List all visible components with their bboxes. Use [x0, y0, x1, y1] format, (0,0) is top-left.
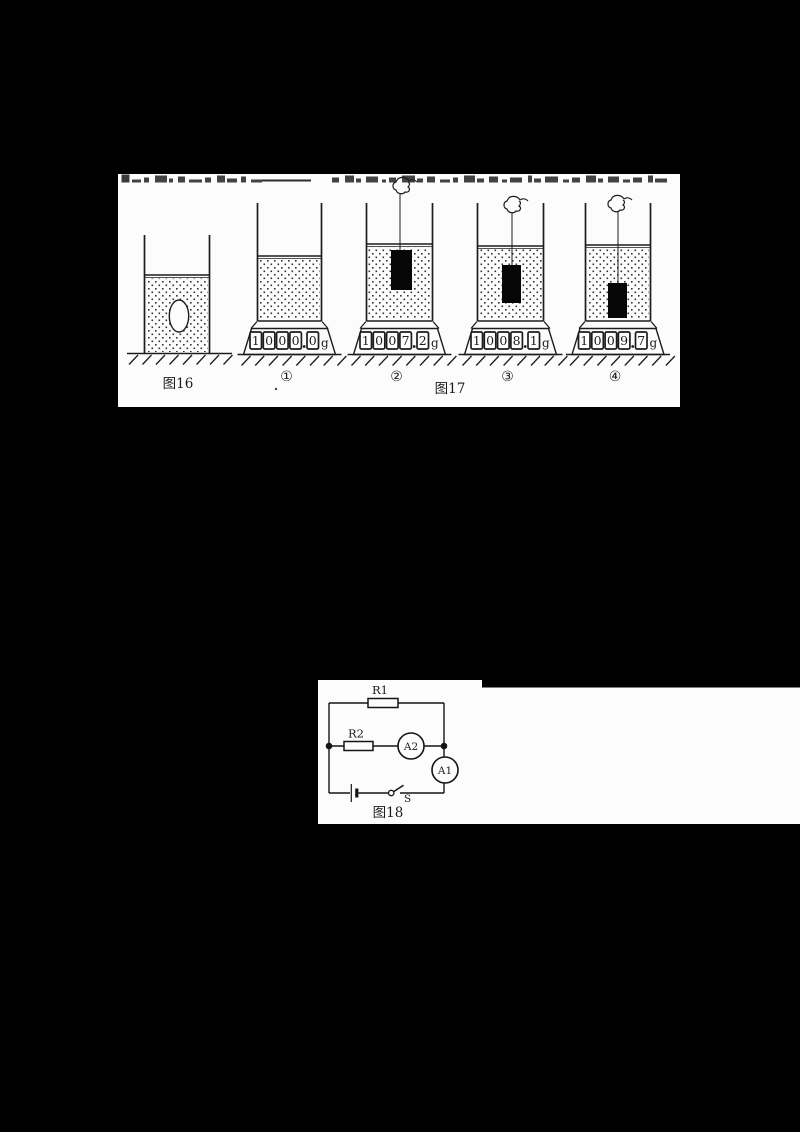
beaker-index-label: ②	[390, 369, 403, 385]
scanned-exam-page: 图16 10000g①10072g②10081g③10097g④ 图17 R1 …	[0, 0, 800, 1132]
switch-label: S	[404, 793, 411, 805]
clipped-glyph	[633, 178, 642, 183]
scale-reading-digit: 7	[637, 333, 645, 348]
clipped-glyph	[241, 177, 246, 183]
scale-reading-digit: 0	[375, 333, 383, 348]
scale-reading-digit: 1	[362, 333, 370, 348]
liquid-dots	[259, 260, 320, 320]
suspended-block	[391, 250, 412, 290]
resistor-r1-label: R1	[372, 683, 388, 697]
scale-reading-digit: 1	[580, 333, 588, 348]
suspended-block	[502, 265, 521, 303]
ammeter-a1-label: A1	[437, 765, 452, 777]
scale-reading-digit: 0	[309, 333, 317, 348]
scale-reading-digit: 2	[419, 333, 427, 348]
clipped-glyph	[586, 176, 596, 183]
scale-reading-digit: 0	[388, 333, 396, 348]
clipped-glyph	[648, 176, 653, 183]
beaker-index-label: ③	[501, 369, 514, 385]
ammeter-a2-label: A2	[403, 741, 418, 753]
clipped-glyph	[623, 180, 630, 183]
unit-label: g	[321, 336, 329, 350]
clipped-glyph	[402, 176, 415, 183]
scale-reading-digit: 0	[278, 333, 286, 348]
clipped-glyph	[502, 180, 507, 183]
unit-label: g	[431, 336, 439, 350]
figure17-label: 图17	[435, 381, 466, 397]
clipped-glyph	[332, 178, 339, 183]
clipped-glyph	[534, 179, 541, 183]
clipped-glyph	[572, 178, 580, 183]
scale-reading-digit: 1	[473, 333, 481, 348]
decimal-point	[303, 345, 306, 348]
junction-node	[326, 743, 333, 750]
suspended-block	[608, 283, 627, 318]
resistor-r1	[368, 699, 398, 708]
clipped-glyph	[464, 176, 475, 183]
clipped-glyph	[205, 178, 211, 183]
clipped-glyph	[608, 177, 619, 183]
scale-reading-digit: 0	[594, 333, 602, 348]
scan-notch	[482, 680, 800, 688]
scale-reading-digit: 0	[499, 333, 507, 348]
clipped-glyph	[251, 180, 262, 183]
clipped-glyph	[417, 179, 423, 183]
junction-node	[441, 743, 448, 750]
beaker-index-label: ①	[280, 369, 293, 385]
clipped-glyph	[528, 176, 532, 183]
floating-egg	[169, 300, 188, 332]
clipped-glyph	[427, 177, 435, 183]
scale-reading-digit: 9	[620, 333, 628, 348]
scale-reading-digit: 1	[530, 333, 538, 348]
clipped-glyph	[655, 179, 667, 183]
scale-reading-digit: 0	[292, 333, 300, 348]
stray-dot	[275, 388, 277, 390]
scale-reading-digit: 0	[265, 333, 273, 348]
clipped-glyph	[366, 177, 378, 183]
scale-reading-digit: 0	[607, 333, 615, 348]
decimal-point	[413, 345, 416, 348]
clipped-glyph	[489, 177, 498, 183]
unit-label: g	[542, 336, 550, 350]
scale-reading-digit: 1	[252, 333, 260, 348]
clipped-glyph	[155, 176, 167, 183]
scale-reading-digit: 0	[486, 333, 494, 348]
clipped-glyph	[169, 179, 173, 183]
decimal-point	[631, 345, 634, 348]
blank-underline	[262, 180, 311, 182]
clipped-glyph	[510, 178, 522, 183]
clipped-glyph	[345, 176, 354, 183]
decimal-point	[524, 345, 527, 348]
switch-pivot	[389, 790, 394, 795]
clipped-glyph	[440, 180, 450, 183]
beaker-index-label: ④	[609, 369, 622, 385]
clipped-glyph	[217, 176, 225, 183]
unit-label: g	[650, 336, 658, 350]
resistor-r2-label: R2	[348, 727, 364, 741]
clipped-glyph	[598, 179, 603, 183]
clipped-glyph	[122, 175, 130, 183]
clipped-glyph	[189, 180, 202, 183]
clipped-glyph	[545, 177, 558, 183]
clipped-glyph	[563, 180, 569, 183]
clipped-glyph	[132, 180, 141, 183]
scale-reading-digit: 7	[402, 333, 410, 348]
clipped-glyph	[453, 178, 458, 183]
resistor-r2	[344, 742, 373, 751]
clipped-glyph	[144, 178, 149, 183]
figure16-label: 图16	[163, 376, 194, 392]
clipped-glyph	[227, 179, 237, 183]
clipped-glyph	[477, 179, 484, 183]
clipped-glyph	[356, 179, 361, 183]
clipped-glyph	[178, 177, 185, 183]
scale-reading-digit: 8	[513, 333, 521, 348]
clipped-glyph	[382, 180, 386, 183]
figure18-label: 图18	[373, 805, 404, 821]
